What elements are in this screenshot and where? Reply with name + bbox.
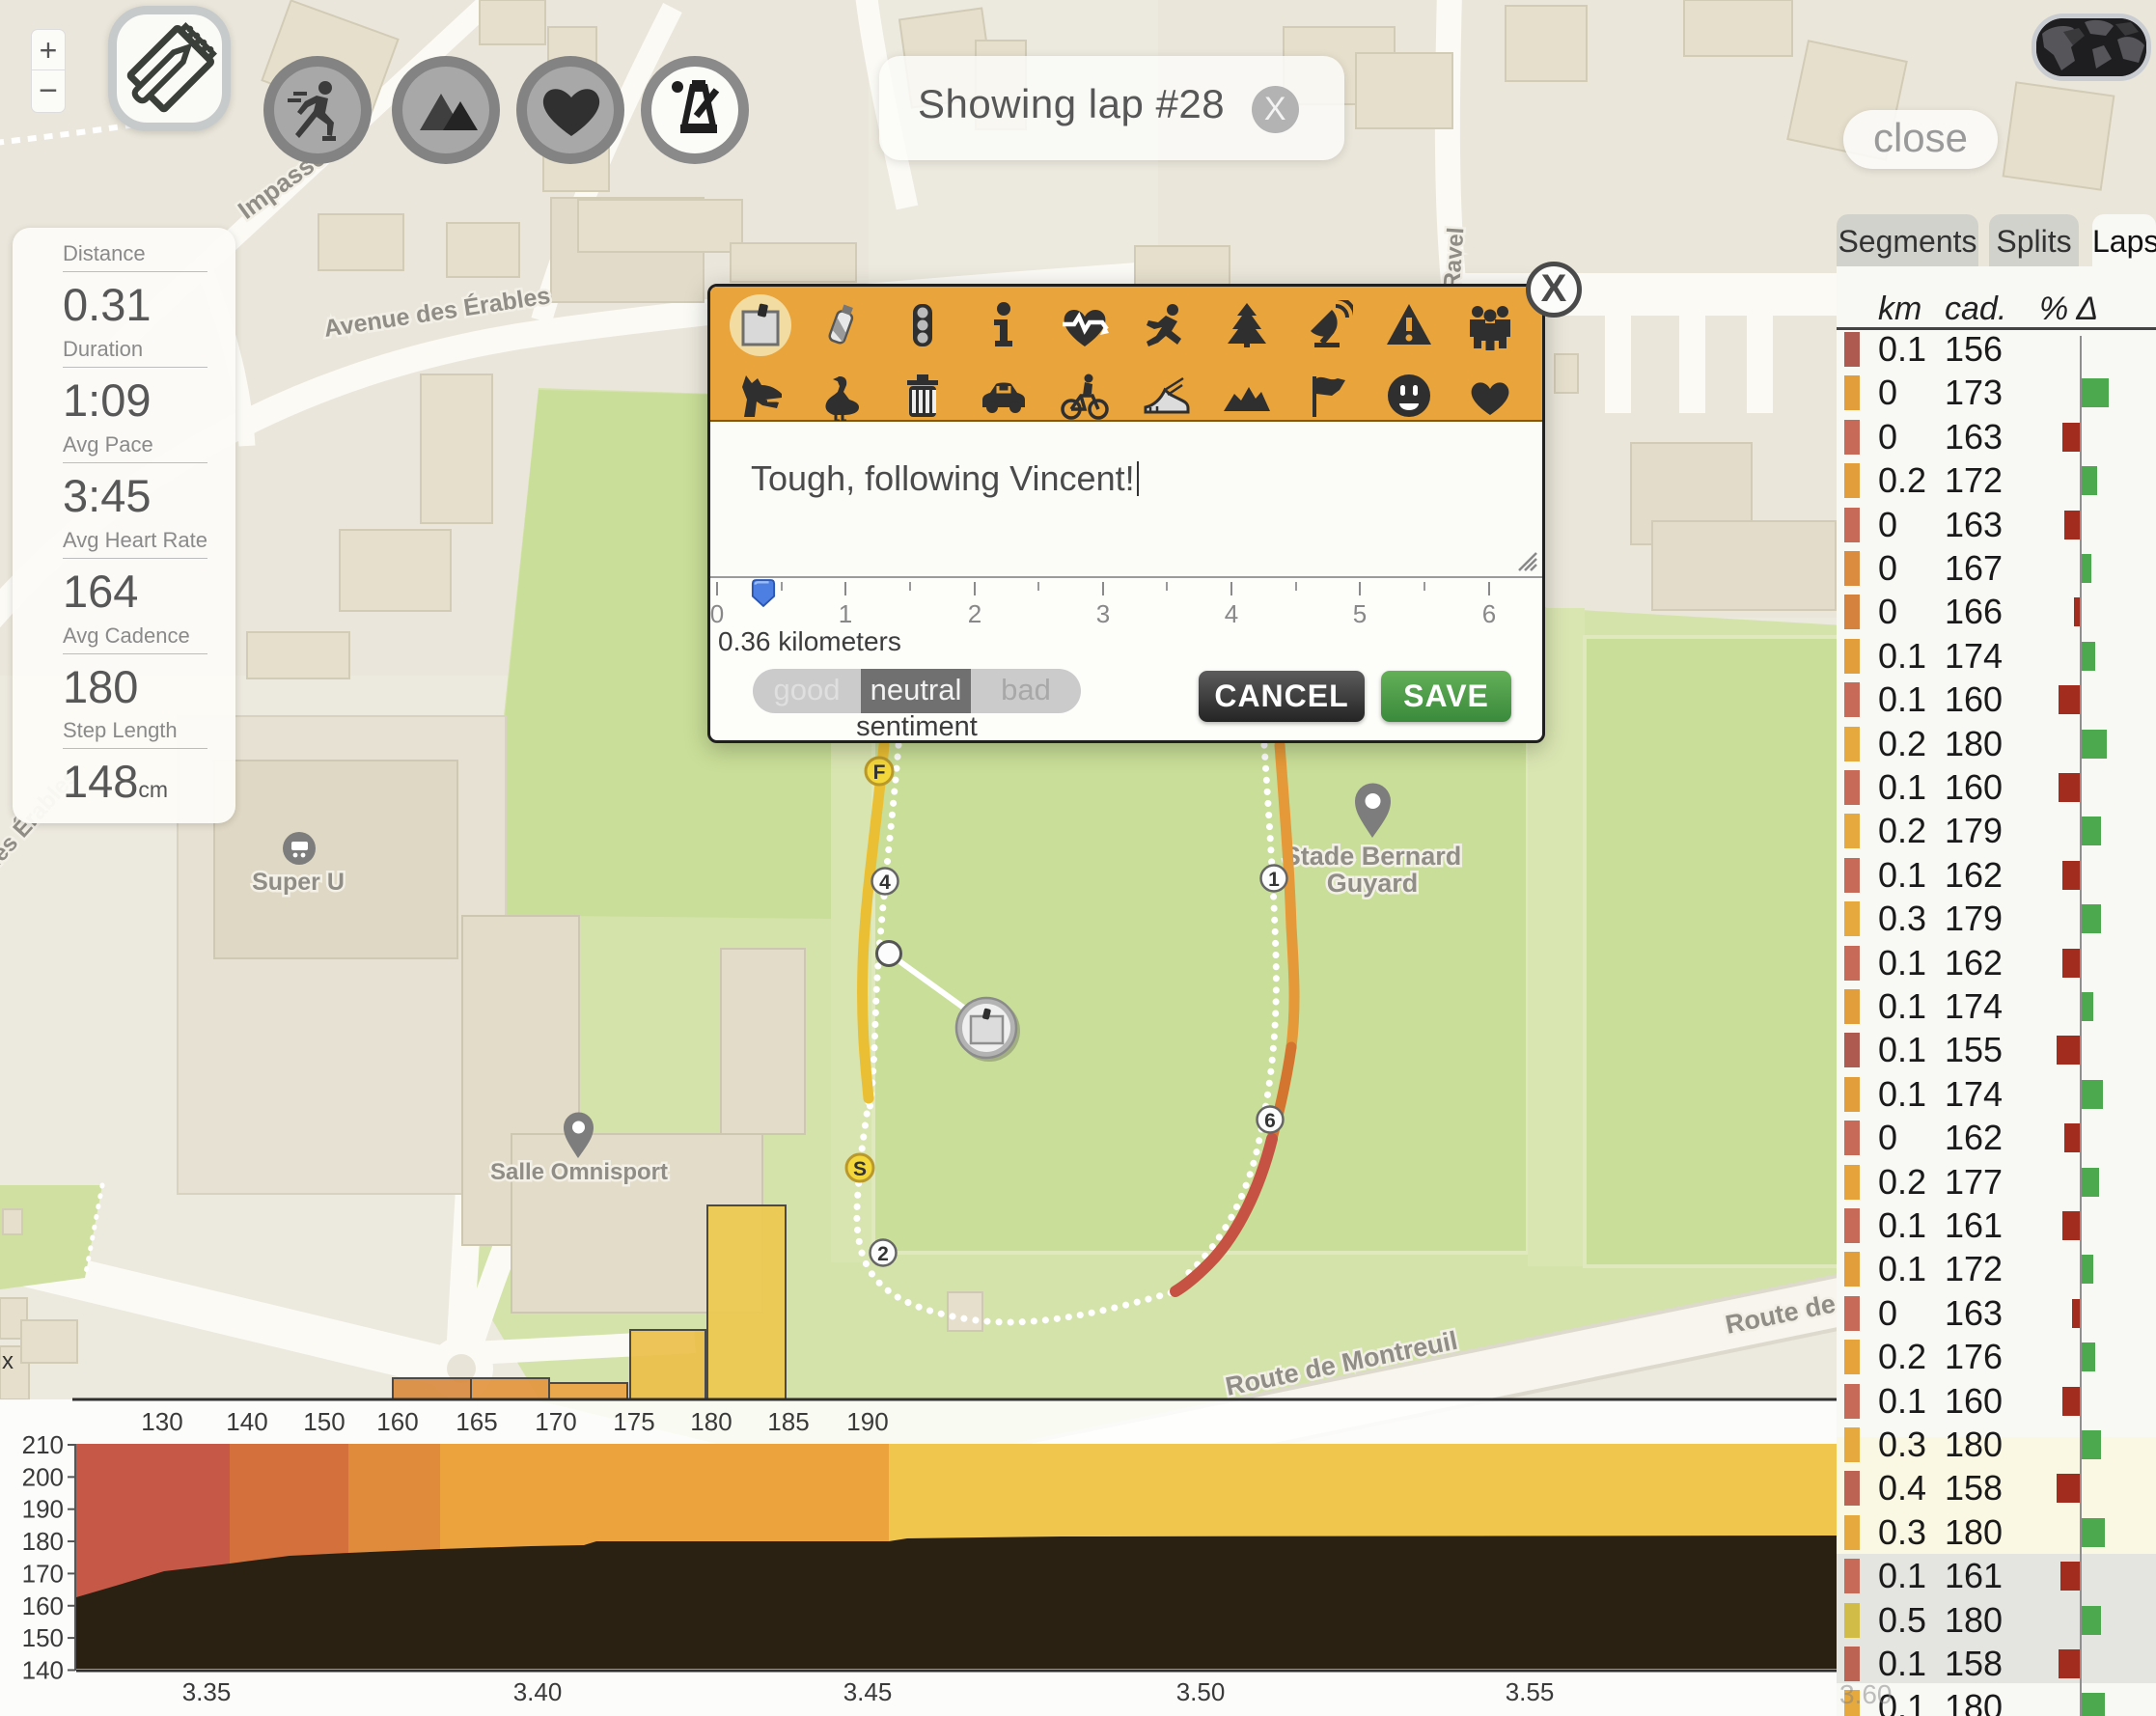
svg-text:3.55: 3.55	[1506, 1677, 1555, 1706]
svg-text:2: 2	[877, 1243, 889, 1265]
svg-text:185: 185	[767, 1407, 809, 1436]
svg-text:Stade Bernard: Stade Bernard	[1284, 842, 1462, 871]
svg-text:160: 160	[22, 1591, 64, 1620]
svg-text:4: 4	[879, 872, 891, 894]
svg-text:160: 160	[376, 1407, 418, 1436]
svg-text:175: 175	[613, 1407, 654, 1436]
svg-text:165: 165	[456, 1407, 497, 1436]
svg-text:F: F	[873, 761, 886, 784]
svg-text:210: 210	[22, 1430, 64, 1459]
svg-text:3.50: 3.50	[1176, 1677, 1226, 1706]
svg-text:140: 140	[22, 1655, 64, 1684]
svg-text:180: 180	[690, 1407, 732, 1436]
svg-text:Guyard: Guyard	[1327, 869, 1419, 898]
svg-text:200: 200	[22, 1462, 64, 1491]
svg-text:150: 150	[303, 1407, 345, 1436]
svg-text:Super U: Super U	[252, 869, 345, 896]
svg-text:150: 150	[22, 1623, 64, 1652]
svg-text:170: 170	[22, 1559, 64, 1588]
svg-text:190: 190	[22, 1495, 64, 1524]
svg-text:1: 1	[1268, 869, 1280, 891]
svg-text:190: 190	[846, 1407, 888, 1436]
svg-text:130: 130	[141, 1407, 182, 1436]
svg-text:6: 6	[1264, 1110, 1276, 1132]
svg-text:3.45: 3.45	[843, 1677, 893, 1706]
svg-text:Ravel: Ravel	[1439, 227, 1469, 291]
svg-text:Salle Omnisport: Salle Omnisport	[490, 1159, 668, 1185]
svg-text:S: S	[853, 1158, 867, 1180]
svg-text:3.35: 3.35	[182, 1677, 232, 1706]
svg-text:170: 170	[535, 1407, 576, 1436]
svg-text:180: 180	[22, 1527, 64, 1556]
svg-text:3.40: 3.40	[513, 1677, 563, 1706]
svg-text:140: 140	[226, 1407, 267, 1436]
svg-text:x: x	[2, 1348, 14, 1374]
